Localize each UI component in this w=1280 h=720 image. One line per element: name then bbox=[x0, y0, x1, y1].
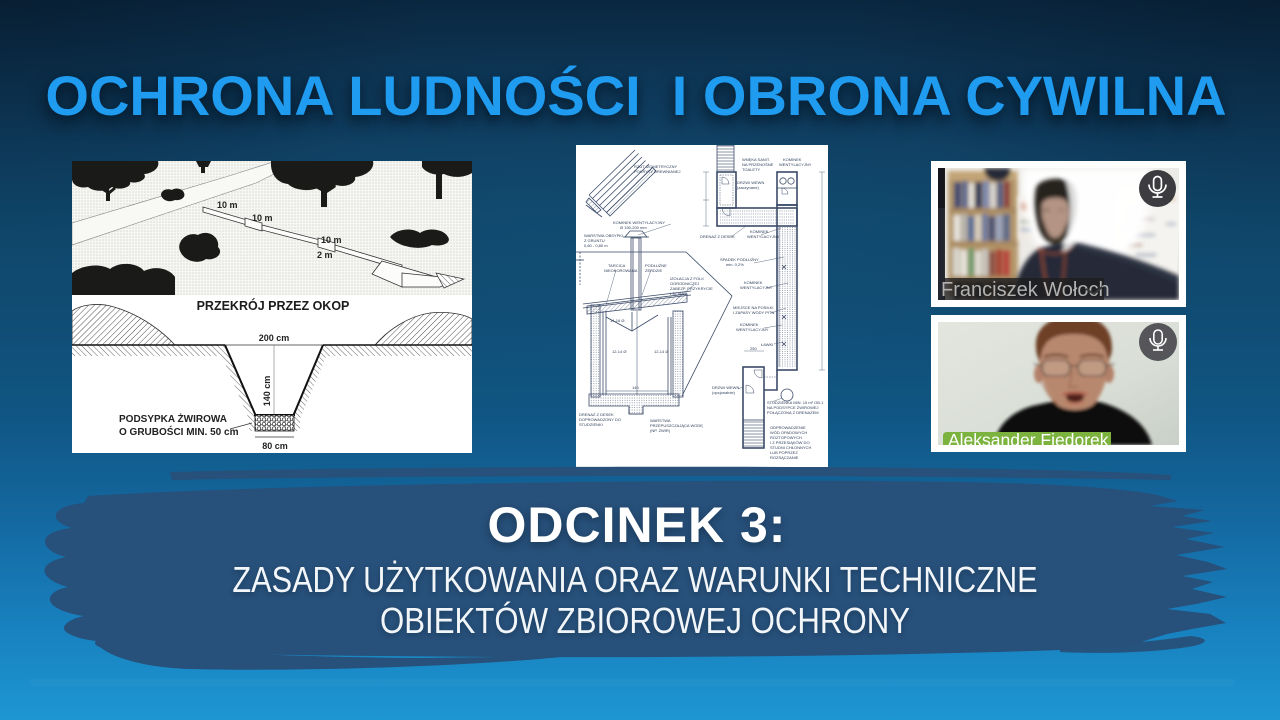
svg-text:WENTYLACYJNY: WENTYLACYJNY bbox=[747, 234, 780, 239]
svg-text:Ø 150-200 mm: Ø 150-200 mm bbox=[620, 225, 647, 230]
svg-text:0,60 - 0,80 m: 0,60 - 0,80 m bbox=[584, 243, 608, 248]
svg-text:12-14 Ø: 12-14 Ø bbox=[654, 349, 668, 354]
svg-text:ŻERDZIE: ŻERDZIE bbox=[645, 268, 662, 273]
svg-text:PODSYPKA ŻWIROWA: PODSYPKA ŻWIROWA bbox=[119, 412, 227, 425]
svg-text:DRENAŻ Z DESEK: DRENAŻ Z DESEK bbox=[700, 234, 735, 239]
svg-text:(zaczynane): (zaczynane) bbox=[737, 185, 759, 190]
svg-text:Franciszek Wołoch: Franciszek Wołoch bbox=[941, 279, 1110, 300]
svg-text:I ŚCIANY: I ŚCIANY bbox=[670, 291, 687, 296]
svg-text:10 m: 10 m bbox=[321, 235, 342, 245]
svg-text:200 cm: 200 cm bbox=[259, 333, 290, 343]
svg-text:WENTYLACYJNY: WENTYLACYJNY bbox=[740, 285, 773, 290]
svg-text:10 m: 10 m bbox=[217, 200, 238, 210]
svg-text:PRZEKRÓJ PRZEZ OKOP: PRZEKRÓJ PRZEZ OKOP bbox=[197, 298, 350, 313]
svg-text:ŁAWKI: ŁAWKI bbox=[761, 342, 773, 347]
svg-text:(NP. ŻWIR): (NP. ŻWIR) bbox=[650, 428, 671, 433]
svg-text:Aleksander Fiedorek: Aleksander Fiedorek bbox=[948, 430, 1109, 445]
svg-text:2 m: 2 m bbox=[317, 250, 333, 260]
svg-text:140: 140 bbox=[632, 385, 639, 390]
svg-text:12-14 Ø: 12-14 Ø bbox=[612, 349, 626, 354]
svg-text:POKRYTY DREWNIANEJ: POKRYTY DREWNIANEJ bbox=[634, 169, 681, 174]
svg-text:80 cm: 80 cm bbox=[262, 441, 288, 451]
svg-text:14-16 Ø: 14-16 Ø bbox=[610, 318, 624, 323]
svg-text:TOALETY: TOALETY bbox=[742, 167, 760, 172]
svg-text:(opcjonalnie): (opcjonalnie) bbox=[712, 390, 736, 395]
svg-text:POŁĄCZONA Z DRENAŻEM: POŁĄCZONA Z DRENAŻEM bbox=[767, 410, 819, 415]
svg-text:WENTYLACYJNY: WENTYLACYJNY bbox=[779, 162, 812, 167]
svg-text:I ZAPASY WODY PITN: I ZAPASY WODY PITN bbox=[733, 310, 774, 315]
svg-text:140 cm: 140 cm bbox=[262, 376, 272, 407]
svg-text:250: 250 bbox=[750, 346, 757, 351]
svg-text:10 m: 10 m bbox=[252, 213, 273, 223]
svg-text:O GRUBOŚCI MIN. 50 cm: O GRUBOŚCI MIN. 50 cm bbox=[119, 425, 239, 438]
svg-text:WENTYLACYJNY: WENTYLACYJNY bbox=[736, 327, 769, 332]
svg-text:min. 0,2%: min. 0,2% bbox=[726, 262, 744, 267]
svg-text:STUDZIENKI: STUDZIENKI bbox=[579, 422, 603, 427]
svg-text:NIEOKOROWANA: NIEOKOROWANA bbox=[604, 268, 638, 273]
